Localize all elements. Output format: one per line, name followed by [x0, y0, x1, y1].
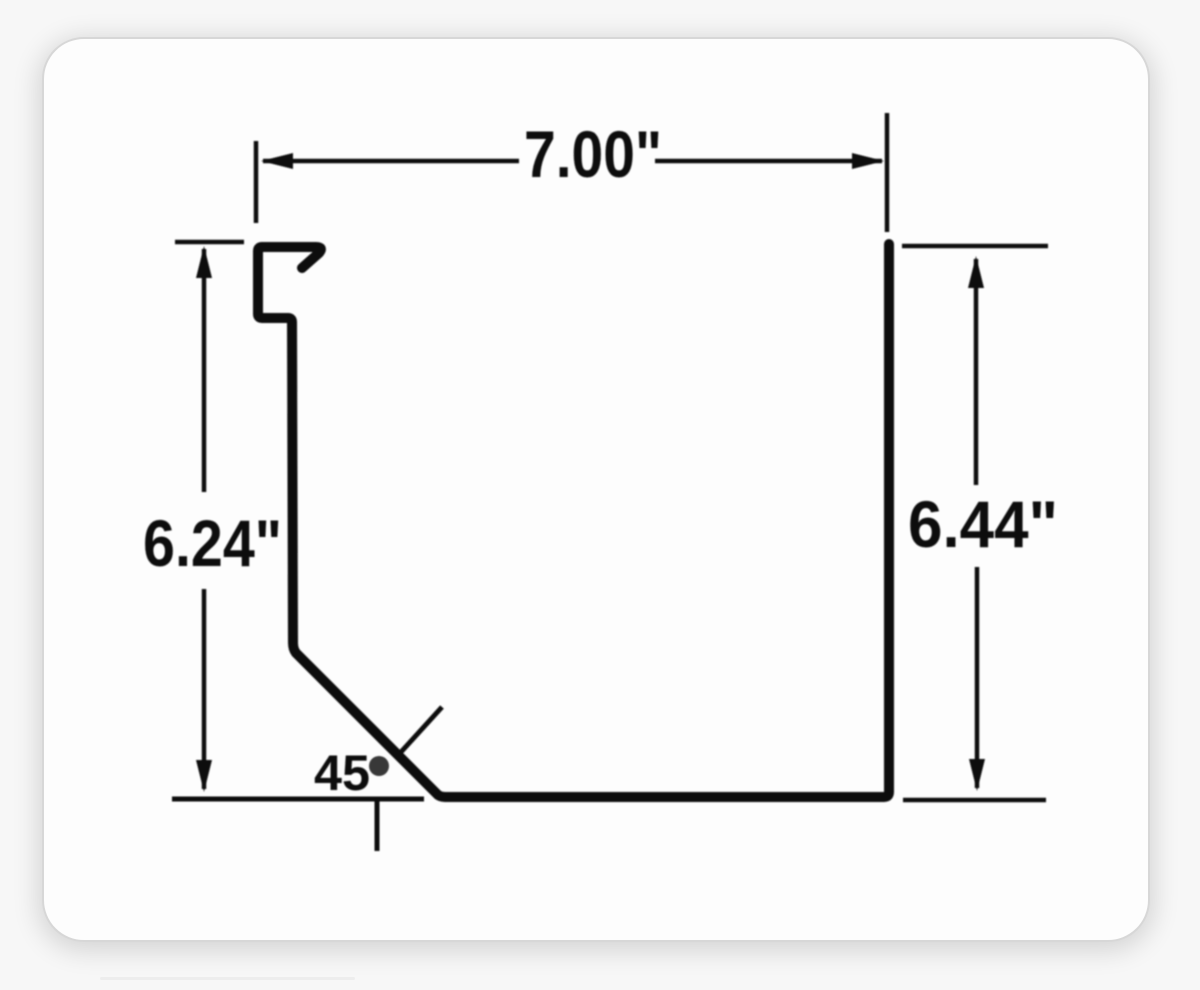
svg-text:6.24": 6.24"	[143, 506, 282, 580]
svg-text:6.44": 6.44"	[908, 487, 1058, 561]
svg-text:45: 45	[314, 745, 370, 801]
svg-text:7.00": 7.00"	[524, 117, 662, 191]
